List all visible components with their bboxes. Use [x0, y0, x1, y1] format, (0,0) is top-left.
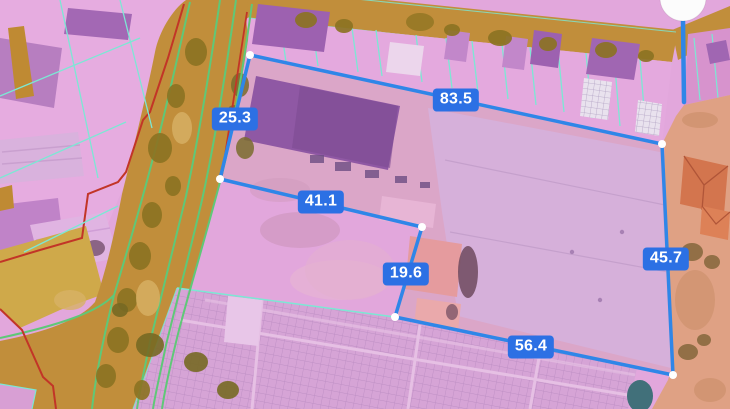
measurement-vertex-dot[interactable] [391, 313, 399, 321]
measurement-handle-stem [683, 20, 684, 102]
map-measure-screen: 25.3 83.5 41.1 19.6 45.7 56.4 [0, 0, 730, 409]
measurement-vertex-dot[interactable] [246, 51, 254, 59]
measurement-label-mid-inset: 19.6 [383, 263, 429, 286]
measurement-vertex-dot[interactable] [216, 175, 224, 183]
measurement-vertex-dot[interactable] [658, 140, 666, 148]
measurement-vertex-dot[interactable] [418, 223, 426, 231]
aerial-map[interactable] [0, 0, 730, 409]
measurement-vertex-dot[interactable] [669, 371, 677, 379]
measurement-label-east: 45.7 [643, 248, 689, 271]
measurement-label-west: 25.3 [212, 108, 258, 131]
measurement-label-north: 83.5 [433, 89, 479, 112]
measurement-label-mid-west: 41.1 [298, 191, 344, 214]
measurement-label-south: 56.4 [508, 336, 554, 359]
